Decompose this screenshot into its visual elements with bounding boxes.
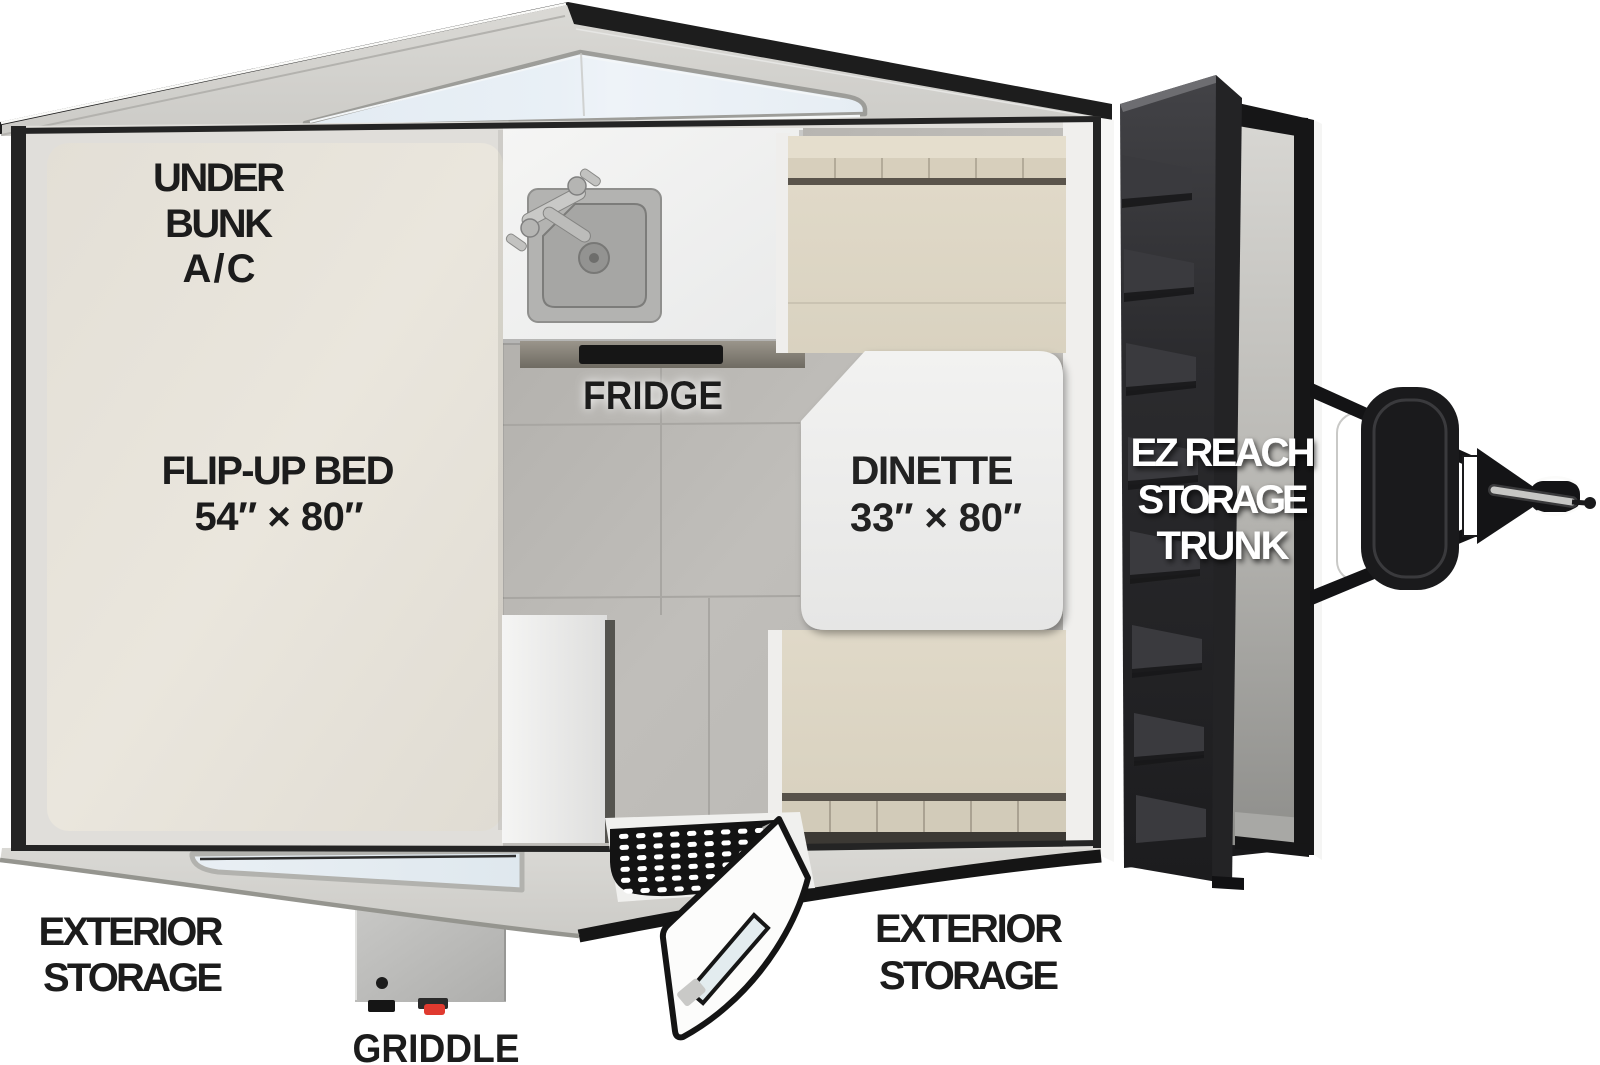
svg-text:TRUNK: TRUNK <box>1157 524 1290 568</box>
svg-text:FLIP-UP BED: FLIP-UP BED <box>162 449 395 493</box>
svg-text:A/C: A/C <box>183 247 256 291</box>
svg-text:BUNK: BUNK <box>165 202 273 246</box>
svg-text:FRIDGE: FRIDGE <box>583 374 723 418</box>
svg-text:UNDER: UNDER <box>153 156 285 200</box>
svg-text:EXTERIOR: EXTERIOR <box>875 907 1063 951</box>
svg-text:EXTERIOR: EXTERIOR <box>39 910 224 954</box>
svg-text:DINETTE: DINETTE <box>851 449 1014 493</box>
svg-text:GRIDDLE: GRIDDLE <box>353 1027 520 1065</box>
svg-text:EZ REACH: EZ REACH <box>1131 431 1316 475</box>
svg-text:STORAGE: STORAGE <box>879 954 1059 998</box>
svg-text:STORAGE: STORAGE <box>1138 478 1309 522</box>
svg-text:STORAGE: STORAGE <box>43 956 223 1000</box>
svg-text:54″ × 80″: 54″ × 80″ <box>195 495 364 539</box>
svg-text:33″ × 80″: 33″ × 80″ <box>850 496 1022 540</box>
